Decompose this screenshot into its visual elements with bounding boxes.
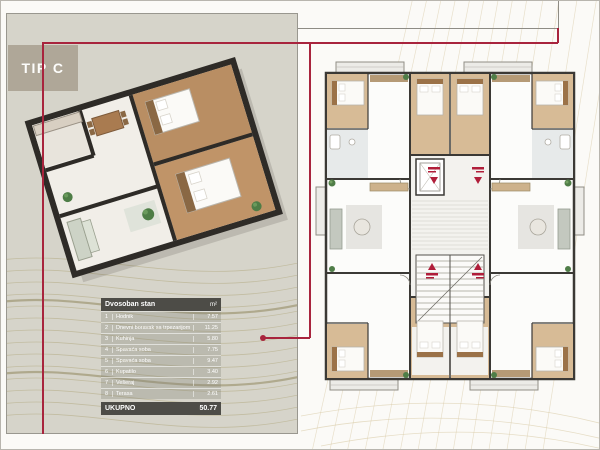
table-total-row: UKUPNO 50.77: [101, 402, 221, 415]
bed: [417, 79, 443, 115]
bed: [536, 81, 568, 105]
bed: [332, 81, 364, 105]
red-callout-dot: [260, 335, 266, 341]
row-value: 7.75: [193, 347, 221, 353]
building-floor-plan: [314, 59, 586, 393]
row-number: 3: [101, 336, 113, 342]
red-callout-line-horizontal: [263, 337, 310, 339]
row-value: 2.61: [193, 391, 221, 397]
bed: [332, 347, 364, 371]
bed: [457, 79, 483, 115]
table-row: 3 Kuhinja 5.80: [101, 333, 221, 344]
row-number: 4: [101, 347, 113, 353]
table-unit-label: m²: [210, 302, 217, 308]
row-label: Hodnik: [113, 314, 193, 320]
row-label: Vešeraj: [113, 380, 193, 386]
row-number: 6: [101, 369, 113, 375]
row-number: 8: [101, 391, 113, 397]
brochure-page: TIP C Dvosoban stan m² 1 Hodnik 7.57 2 D…: [0, 0, 600, 450]
table-title: Dvosoban stan: [105, 301, 155, 308]
row-value: 3.40: [193, 369, 221, 375]
row-number: 2: [101, 325, 113, 331]
table-row: 1 Hodnik 7.57: [101, 311, 221, 322]
row-label: Dnevni boravak sa trpezarijom: [113, 325, 193, 331]
red-accent-line-left: [42, 42, 44, 434]
table-row: 4 Spavaća soba 7.75: [101, 344, 221, 355]
frame-line-top-right: [298, 28, 558, 29]
apartment-type-panel: TIP C Dvosoban stan m² 1 Hodnik 7.57 2 D…: [6, 13, 298, 434]
row-number: 1: [101, 314, 113, 320]
row-value: 11.25: [193, 325, 221, 331]
row-label: Kupatilo: [113, 369, 193, 375]
table-row: 8 Terasa 2.61: [101, 388, 221, 399]
bed: [536, 347, 568, 371]
row-value: 7.57: [193, 314, 221, 320]
bed: [417, 321, 443, 357]
total-label: UKUPNO: [105, 405, 135, 412]
table-row: 5 Spavaća soba 9.47: [101, 355, 221, 366]
table-row: 6 Kupatilo 3.40: [101, 366, 221, 377]
red-callout-line-vertical: [309, 42, 311, 338]
row-number: 5: [101, 358, 113, 364]
staircase: [416, 255, 484, 323]
row-number: 7: [101, 380, 113, 386]
bed: [457, 321, 483, 357]
row-label: Spavaća soba: [113, 347, 193, 353]
row-value: 2.92: [193, 380, 221, 386]
table-header: Dvosoban stan m²: [101, 298, 221, 311]
row-label: Spavaća soba: [113, 358, 193, 364]
row-value: 5.80: [193, 336, 221, 342]
frame-line-right-notch: [558, 1, 559, 28]
row-value: 9.47: [193, 358, 221, 364]
table-row: 7 Vešeraj 2.92: [101, 377, 221, 388]
room-area-table: Dvosoban stan m² 1 Hodnik 7.57 2 Dnevni …: [101, 298, 221, 415]
row-label: Kuhinja: [113, 336, 193, 342]
total-value: 50.77: [199, 405, 217, 412]
row-label: Terasa: [113, 391, 193, 397]
red-accent-line-top: [42, 42, 558, 44]
table-row: 2 Dnevni boravak sa trpezarijom 11.25: [101, 322, 221, 333]
red-accent-line-right: [557, 28, 559, 43]
